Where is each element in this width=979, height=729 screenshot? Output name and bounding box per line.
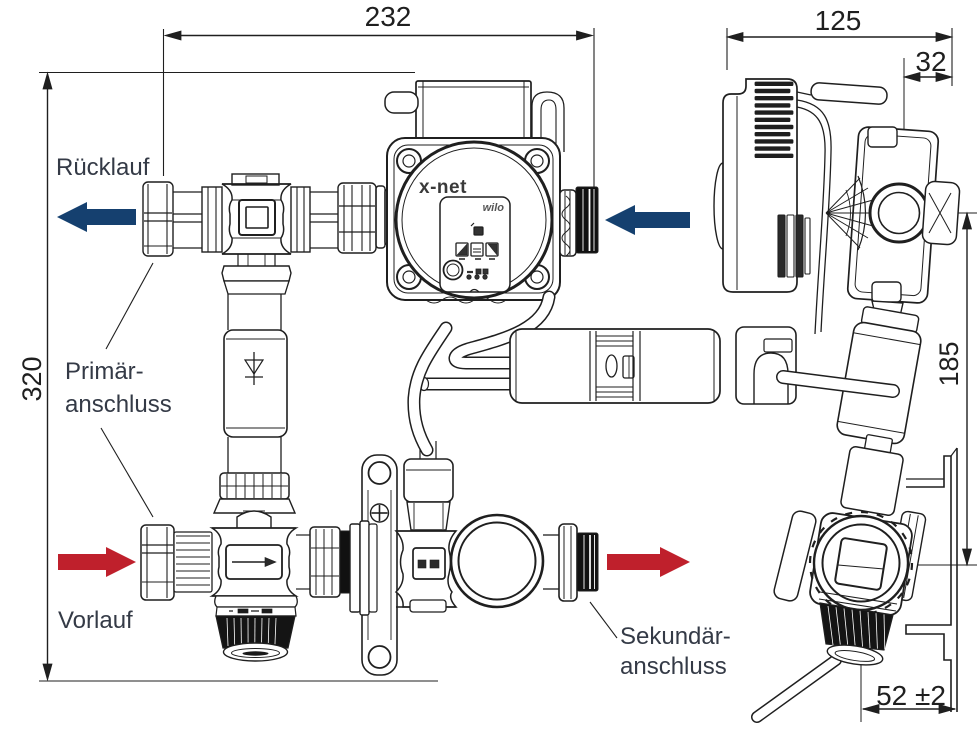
svg-text:Vorlauf: Vorlauf (58, 607, 133, 634)
svg-text:125: 125 (815, 5, 862, 36)
svg-text:anschluss: anschluss (65, 391, 172, 418)
svg-text:wilo: wilo (483, 202, 505, 214)
svg-text:Sekundär-: Sekundär- (620, 623, 731, 650)
svg-text:32: 32 (915, 46, 946, 77)
svg-text:232: 232 (365, 1, 412, 32)
svg-text:x-net: x-net (419, 177, 467, 198)
svg-text:52 ±2: 52 ±2 (876, 680, 946, 711)
svg-text:320: 320 (17, 356, 47, 401)
svg-text:Rücklauf: Rücklauf (56, 154, 150, 181)
svg-text:Primär-: Primär- (65, 358, 144, 385)
svg-text:anschluss: anschluss (620, 653, 727, 680)
svg-text:185: 185 (934, 341, 964, 386)
